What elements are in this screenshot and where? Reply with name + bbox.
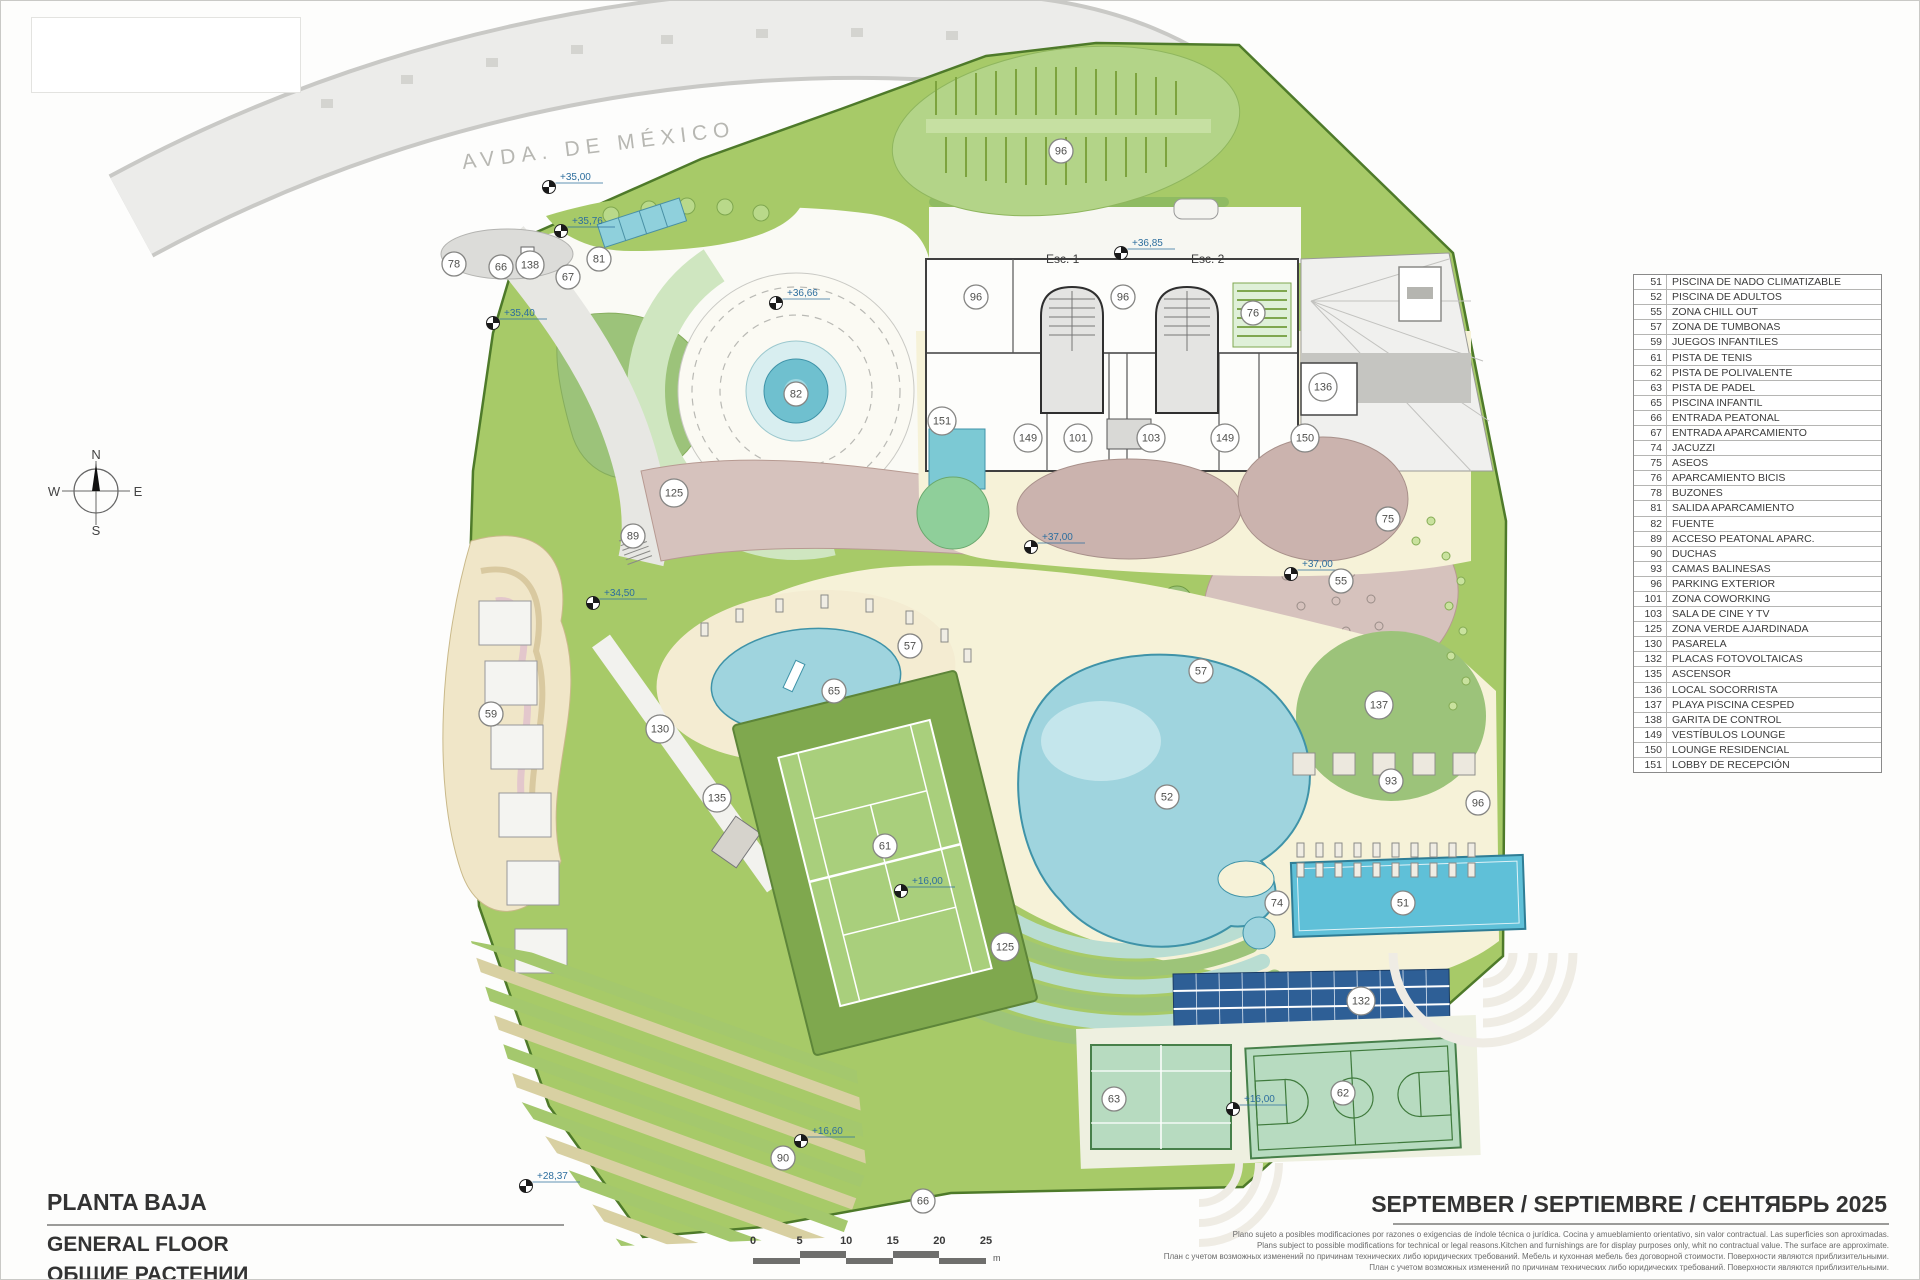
legend-item: 65PISCINA INFANTIL <box>1634 395 1881 410</box>
legend-item: 52PISCINA DE ADULTOS <box>1634 289 1881 304</box>
svg-text:66: 66 <box>917 1196 929 1208</box>
plan-marker-136: 136 <box>1309 373 1337 401</box>
svg-text:81: 81 <box>593 254 605 266</box>
legend-item: 150LOUNGE RESIDENCIAL <box>1634 742 1881 757</box>
legend-item: 51PISCINA DE NADO CLIMATIZABLE <box>1634 275 1881 289</box>
plan-marker-82: 82 <box>784 382 808 406</box>
page-title-ru: ОБЩИЕ РАСТЕНИИ <box>47 1263 248 1280</box>
plan-marker-57: 57 <box>1189 659 1213 683</box>
plan-marker-74: 74 <box>1265 891 1289 915</box>
legend-item-label: DUCHAS <box>1667 548 1716 560</box>
svg-text:+28,37: +28,37 <box>537 1171 568 1182</box>
plan-marker-66: 66 <box>911 1189 935 1213</box>
legend-item-label: PLAYA PISCINA CESPED <box>1667 699 1794 711</box>
legend-item: 66ENTRADA PEATONAL <box>1634 410 1881 425</box>
legend-item-label: CAMAS BALINESAS <box>1667 563 1771 575</box>
svg-text:74: 74 <box>1271 898 1283 910</box>
plan-marker-89: 89 <box>621 524 645 548</box>
legend-item-number: 90 <box>1634 547 1667 561</box>
legend-item: 138GARITA DE CONTROL <box>1634 712 1881 727</box>
plan-marker-66: 66 <box>489 255 513 279</box>
legend-item-label: SALA DE CINE Y TV <box>1667 608 1769 620</box>
legend-item-label: PISTA DE TENIS <box>1667 352 1752 364</box>
legend-item: 81SALIDA APARCAMIENTO <box>1634 500 1881 515</box>
svg-text:90: 90 <box>777 1153 789 1165</box>
legend-item: 82FUENTE <box>1634 516 1881 531</box>
scale-bar: 0510152025 m <box>753 1235 1023 1271</box>
installations-box <box>1399 267 1441 321</box>
plan-marker-135: 135 <box>703 784 731 812</box>
compass-west: W <box>48 484 61 499</box>
svg-text:149: 149 <box>1216 433 1234 445</box>
legend-item-number: 76 <box>1634 471 1667 485</box>
scale-labels: 0510152025 <box>753 1235 986 1247</box>
legend-item-number: 52 <box>1634 290 1667 304</box>
plan-marker-137: 137 <box>1365 691 1393 719</box>
scale-blocks <box>753 1251 986 1264</box>
plan-marker-149: 149 <box>1211 424 1239 452</box>
legend-item-label: PISCINA DE NADO CLIMATIZABLE <box>1667 276 1841 288</box>
svg-text:+35,40: +35,40 <box>504 308 535 319</box>
plan-marker-51: 51 <box>1391 891 1415 915</box>
plan-marker-103: 103 <box>1137 424 1165 452</box>
plan-marker-150: 150 <box>1291 424 1319 452</box>
legend-item-label: PISTA DE PADEL <box>1667 382 1755 394</box>
legend-item-number: 137 <box>1634 698 1667 712</box>
legend-item: 132PLACAS FOTOVOLTAICAS <box>1634 651 1881 666</box>
legend-item-label: ZONA COWORKING <box>1667 593 1771 605</box>
svg-text:103: 103 <box>1142 433 1160 445</box>
residential-lounge-terrace <box>1238 437 1408 561</box>
svg-text:+36,85: +36,85 <box>1132 238 1163 249</box>
svg-text:149: 149 <box>1019 433 1037 445</box>
plan-marker-52: 52 <box>1155 785 1179 809</box>
scale-label: 15 <box>887 1235 899 1247</box>
scale-label: 20 <box>933 1235 945 1247</box>
plan-marker-63: 63 <box>1102 1087 1126 1111</box>
legend-item-number: 74 <box>1634 441 1667 455</box>
legend-item: 55ZONA CHILL OUT <box>1634 304 1881 319</box>
jacuzzi <box>1243 917 1275 949</box>
legend-item: 61PISTA DE TENIS <box>1634 349 1881 364</box>
north-needle <box>92 463 100 491</box>
svg-text:101: 101 <box>1069 433 1087 445</box>
svg-text:136: 136 <box>1314 382 1332 394</box>
legend-item: 89ACCESO PEATONAL APARC. <box>1634 531 1881 546</box>
legend-item: 130PASARELA <box>1634 636 1881 651</box>
legend-item-number: 51 <box>1634 275 1667 289</box>
stair-core-1 <box>1041 287 1103 413</box>
svg-text:65: 65 <box>828 686 840 698</box>
legend-item: 135ASCENSOR <box>1634 666 1881 681</box>
legend-item-number: 101 <box>1634 592 1667 606</box>
legend-item-number: 75 <box>1634 456 1667 470</box>
plan-marker-90: 90 <box>771 1146 795 1170</box>
canopy-structure <box>1174 199 1218 219</box>
scale-label: 25 <box>980 1235 992 1247</box>
legend-item-number: 103 <box>1634 607 1667 621</box>
lounge-terrace <box>1017 459 1241 559</box>
legend-item-label: ZONA CHILL OUT <box>1667 306 1758 318</box>
svg-text:59: 59 <box>485 709 497 721</box>
plan-marker-125: 125 <box>991 933 1019 961</box>
legend-item: 74JACUZZI <box>1634 440 1881 455</box>
lobby-garden <box>917 477 989 549</box>
compass-east: E <box>134 484 143 499</box>
svg-text:+16,60: +16,60 <box>812 1126 843 1137</box>
svg-text:75: 75 <box>1382 514 1394 526</box>
legend-item-label: PISCINA DE ADULTOS <box>1667 291 1782 303</box>
compass-south: S <box>92 523 101 538</box>
svg-text:67: 67 <box>562 272 574 284</box>
legend-item-number: 151 <box>1634 758 1667 772</box>
scale-label: 10 <box>840 1235 852 1247</box>
legend-item-label: PASARELA <box>1667 638 1727 650</box>
plan-marker-93: 93 <box>1379 769 1403 793</box>
svg-text:78: 78 <box>448 259 460 271</box>
legend-item: 136LOCAL SOCORRISTA <box>1634 682 1881 697</box>
legend-item-number: 136 <box>1634 683 1667 697</box>
title-rule-right <box>1393 1223 1889 1225</box>
legend-item-number: 78 <box>1634 486 1667 500</box>
legend-item-label: ZONA DE TUMBONAS <box>1667 321 1780 333</box>
legend-item-label: PARKING EXTERIOR <box>1667 578 1775 590</box>
svg-text:51: 51 <box>1397 898 1409 910</box>
legend-item: 63PISTA DE PADEL <box>1634 380 1881 395</box>
svg-text:55: 55 <box>1335 576 1347 588</box>
svg-text:+34,50: +34,50 <box>604 588 635 599</box>
legend-item-number: 149 <box>1634 728 1667 742</box>
legend-rows: 51PISCINA DE NADO CLIMATIZABLE52PISCINA … <box>1634 275 1881 772</box>
svg-text:57: 57 <box>904 641 916 653</box>
legend-item-number: 130 <box>1634 637 1667 651</box>
svg-text:93: 93 <box>1385 776 1397 788</box>
compass-north: N <box>91 447 100 462</box>
svg-text:61: 61 <box>879 841 891 853</box>
svg-text:150: 150 <box>1296 433 1314 445</box>
legend-item-number: 82 <box>1634 517 1667 531</box>
legend-item-number: 125 <box>1634 622 1667 636</box>
plan-marker-149: 149 <box>1014 424 1042 452</box>
legend-item-label: ENTRADA PEATONAL <box>1667 412 1780 424</box>
svg-text:125: 125 <box>996 942 1014 954</box>
svg-text:76: 76 <box>1247 308 1259 320</box>
legend-item-label: PLACAS FOTOVOLTAICAS <box>1667 653 1803 665</box>
page-title-es: PLANTA BAJA <box>47 1189 207 1216</box>
plan-marker-59: 59 <box>479 702 503 726</box>
plan-sheet: AVDA. DE MÉXICO Esc. 1 Esc. 2 N S E W +3… <box>0 0 1920 1280</box>
plan-marker-76: 76 <box>1241 301 1265 325</box>
legend-item-number: 67 <box>1634 426 1667 440</box>
svg-text:135: 135 <box>708 793 726 805</box>
legend-item: 125ZONA VERDE AJARDINADA <box>1634 621 1881 636</box>
legend-item-number: 59 <box>1634 335 1667 349</box>
legend-item-label: APARCAMIENTO BICIS <box>1667 472 1785 484</box>
plan-marker-78: 78 <box>442 252 466 276</box>
plan-marker-65: 65 <box>822 679 846 703</box>
svg-text:63: 63 <box>1108 1094 1120 1106</box>
plan-marker-96: 96 <box>1466 791 1490 815</box>
legend-item-label: ZONA VERDE AJARDINADA <box>1667 623 1809 635</box>
svg-text:+37,00: +37,00 <box>1042 532 1073 543</box>
plan-marker-96: 96 <box>1049 139 1073 163</box>
stair1-label: Esc. 1 <box>1046 252 1080 266</box>
scale-unit: m <box>993 1253 1001 1263</box>
legend-item-number: 89 <box>1634 532 1667 546</box>
svg-text:+37,00: +37,00 <box>1302 559 1333 570</box>
playground <box>443 536 571 912</box>
legend-item-number: 61 <box>1634 350 1667 364</box>
legend-item-label: ENTRADA APARCAMIENTO <box>1667 427 1807 439</box>
scale-label: 0 <box>750 1235 756 1247</box>
legend-item-label: FUENTE <box>1667 518 1714 530</box>
svg-text:+35,00: +35,00 <box>560 172 591 183</box>
legend-item-number: 138 <box>1634 713 1667 727</box>
svg-text:62: 62 <box>1337 1088 1349 1100</box>
svg-text:96: 96 <box>1055 146 1067 158</box>
legend-item: 101ZONA COWORKING <box>1634 591 1881 606</box>
svg-text:96: 96 <box>1117 292 1129 304</box>
svg-text:96: 96 <box>970 292 982 304</box>
plan-marker-61: 61 <box>873 834 897 858</box>
plan-marker-55: 55 <box>1329 569 1353 593</box>
legend-item: 103SALA DE CINE Y TV <box>1634 606 1881 621</box>
svg-text:89: 89 <box>627 531 639 543</box>
legend-item-label: LOUNGE RESIDENCIAL <box>1667 744 1789 756</box>
plan-marker-96: 96 <box>1111 285 1135 309</box>
scale-label: 5 <box>797 1235 803 1247</box>
legend-panel: 51PISCINA DE NADO CLIMATIZABLE52PISCINA … <box>1633 274 1882 773</box>
svg-text:96: 96 <box>1472 798 1484 810</box>
plan-marker-57: 57 <box>898 634 922 658</box>
plan-marker-101: 101 <box>1064 424 1092 452</box>
legend-item-label: ACCESO PEATONAL APARC. <box>1667 533 1815 545</box>
svg-text:57: 57 <box>1195 666 1207 678</box>
disclaimer-line: Plano sujeto a posibles modificaciones p… <box>1051 1229 1889 1240</box>
plan-marker-75: 75 <box>1376 507 1400 531</box>
legend-item: 76APARCAMIENTO BICIS <box>1634 470 1881 485</box>
level-marker: +28,37 <box>520 1171 581 1193</box>
disclaimer-line: Plans subject to possible modifications … <box>1051 1240 1889 1251</box>
plan-marker-151: 151 <box>928 407 956 435</box>
svg-text:52: 52 <box>1161 792 1173 804</box>
legend-item: 137PLAYA PISCINA CESPED <box>1634 697 1881 712</box>
legend-item-label: BUZONES <box>1667 487 1723 499</box>
compass-rose: N S E W <box>48 447 143 538</box>
disclaimer-line: План с учетом возможных изменений по при… <box>1051 1262 1889 1273</box>
legend-item-label: ASEOS <box>1667 457 1708 469</box>
legend-item-number: 65 <box>1634 396 1667 410</box>
legend-item-number: 132 <box>1634 652 1667 666</box>
legend-item-number: 93 <box>1634 562 1667 576</box>
legend-item: 151LOBBY DE RECEPCIÓN <box>1634 757 1881 772</box>
legend-item: 96PARKING EXTERIOR <box>1634 576 1881 591</box>
legend-item-number: 57 <box>1634 320 1667 334</box>
plan-marker-138: 138 <box>516 251 544 279</box>
level-marker: +35,00 <box>543 172 604 194</box>
legend-item-label: PISTA DE POLIVALENTE <box>1667 367 1792 379</box>
legend-item: 149VESTÍBULOS LOUNGE <box>1634 727 1881 742</box>
title-rule-left <box>47 1224 564 1226</box>
plan-marker-125: 125 <box>660 479 688 507</box>
page-title-en: GENERAL FLOOR <box>47 1233 229 1257</box>
legend-item: 93CAMAS BALINESAS <box>1634 561 1881 576</box>
legend-item: 59JUEGOS INFANTILES <box>1634 334 1881 349</box>
stair-core-2 <box>1156 287 1218 413</box>
plan-marker-62: 62 <box>1331 1081 1355 1105</box>
plan-marker-81: 81 <box>587 247 611 271</box>
legend-item-label: JUEGOS INFANTILES <box>1667 336 1778 348</box>
svg-text:82: 82 <box>790 389 802 401</box>
svg-text:130: 130 <box>651 724 669 736</box>
legend-item-label: JACUZZI <box>1667 442 1715 454</box>
plan-marker-67: 67 <box>556 265 580 289</box>
plan-marker-96: 96 <box>964 285 988 309</box>
svg-text:+16,00: +16,00 <box>912 876 943 887</box>
legend-item-label: VESTÍBULOS LOUNGE <box>1667 729 1785 741</box>
legend-item-number: 135 <box>1634 667 1667 681</box>
legend-item-label: LOBBY DE RECEPCIÓN <box>1667 759 1790 771</box>
disclaimer-block: Plano sujeto a posibles modificaciones p… <box>1051 1229 1889 1273</box>
date-line: SEPTEMBER / SEPTIEMBRE / СЕНТЯБРЬ 2025 <box>1371 1191 1887 1218</box>
stair2-label: Esc. 2 <box>1191 252 1225 266</box>
legend-item-number: 96 <box>1634 577 1667 591</box>
svg-text:+16,00: +16,00 <box>1244 1094 1275 1105</box>
legend-item-number: 62 <box>1634 366 1667 380</box>
legend-item-label: GARITA DE CONTROL <box>1667 714 1782 726</box>
svg-text:+36,66: +36,66 <box>787 288 818 299</box>
plan-marker-132: 132 <box>1347 987 1375 1015</box>
svg-text:66: 66 <box>495 262 507 274</box>
legend-item: 62PISTA DE POLIVALENTE <box>1634 365 1881 380</box>
legend-item-number: 150 <box>1634 743 1667 757</box>
svg-text:138: 138 <box>521 260 539 272</box>
svg-text:132: 132 <box>1352 996 1370 1008</box>
svg-text:137: 137 <box>1370 700 1388 712</box>
legend-item: 78BUZONES <box>1634 485 1881 500</box>
legend-item: 67ENTRADA APARCAMIENTO <box>1634 425 1881 440</box>
logo-box <box>31 17 301 93</box>
svg-text:125: 125 <box>665 488 683 500</box>
legend-item: 57ZONA DE TUMBONAS <box>1634 319 1881 334</box>
legend-item-number: 63 <box>1634 381 1667 395</box>
legend-item-number: 55 <box>1634 305 1667 319</box>
svg-text:+35,76: +35,76 <box>572 216 603 227</box>
legend-item-number: 81 <box>1634 501 1667 515</box>
plan-marker-130: 130 <box>646 715 674 743</box>
legend-item: 90DUCHAS <box>1634 546 1881 561</box>
legend-item-label: PISCINA INFANTIL <box>1667 397 1762 409</box>
svg-text:151: 151 <box>933 416 951 428</box>
legend-item-label: ASCENSOR <box>1667 668 1731 680</box>
legend-item-label: SALIDA APARCAMIENTO <box>1667 502 1794 514</box>
legend-item: 75ASEOS <box>1634 455 1881 470</box>
disclaimer-line: План с учетом возможных изменений по при… <box>1051 1251 1889 1262</box>
legend-item-label: LOCAL SOCORRISTA <box>1667 684 1778 696</box>
legend-item-number: 66 <box>1634 411 1667 425</box>
